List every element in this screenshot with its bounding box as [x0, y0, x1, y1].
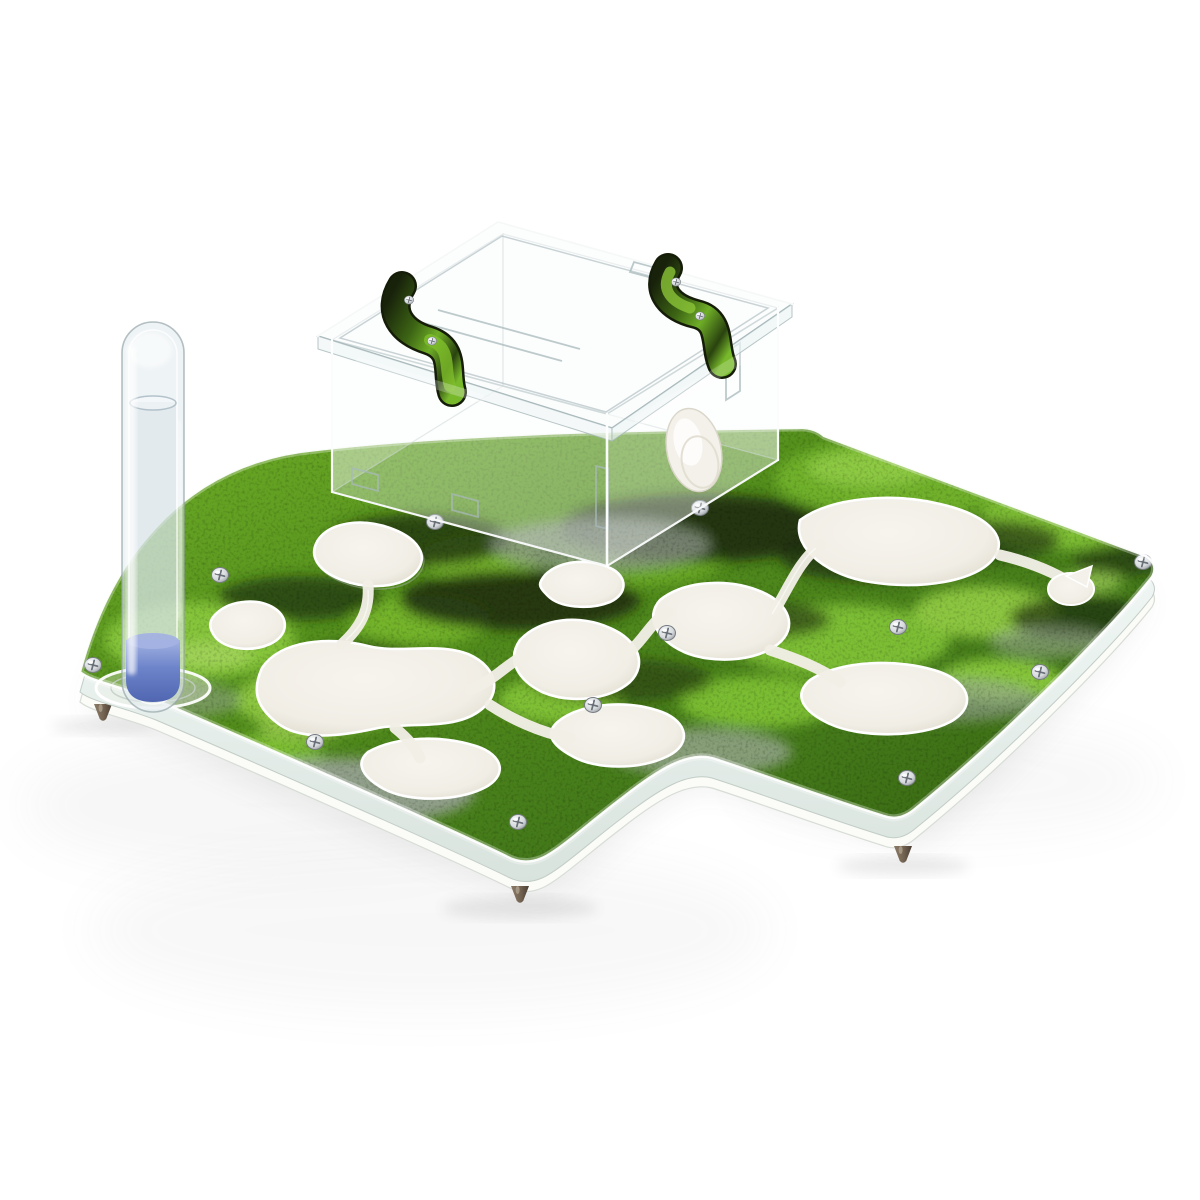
screw: [585, 698, 602, 713]
tube-side-highlight: [127, 345, 136, 675]
ant-farm-photo: [0, 0, 1200, 1200]
nest-chamber: [540, 562, 623, 607]
screw: [1032, 665, 1049, 680]
clip-screw: [695, 312, 704, 320]
screw: [659, 626, 676, 641]
nest-chamber: [257, 641, 495, 735]
product-photo: [0, 0, 1200, 1200]
water-meniscus: [130, 396, 176, 410]
clip-screw: [427, 337, 436, 345]
clip-screw: [671, 278, 680, 286]
screw: [890, 620, 907, 635]
clip-screw: [404, 296, 413, 304]
nest-chamber: [210, 602, 285, 649]
test-tube: [122, 322, 184, 712]
screw: [212, 568, 229, 583]
screw: [510, 815, 527, 830]
tube-water: [130, 402, 176, 640]
screw: [899, 771, 916, 786]
screw: [307, 735, 324, 750]
